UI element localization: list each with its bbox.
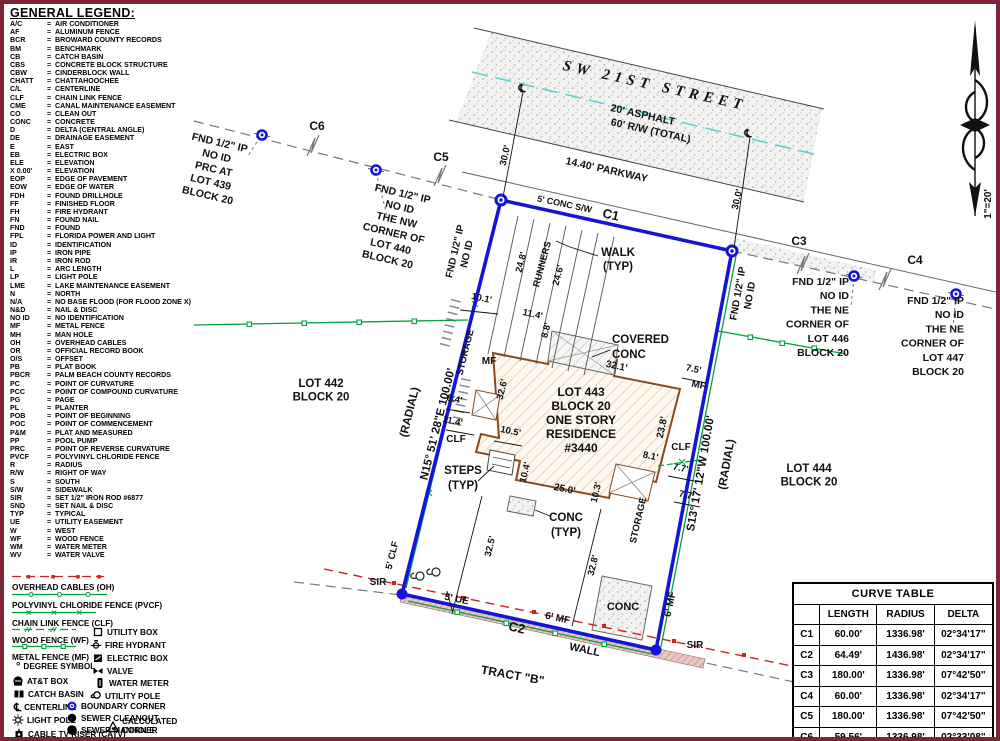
label-steps-typ: STEPS(TYP) bbox=[444, 465, 482, 492]
label-dim-11-4-top: 11.4' bbox=[521, 307, 543, 322]
legend-meaning: PALM BEACH COUNTY RECORDS bbox=[55, 371, 171, 379]
wf-line-sample bbox=[12, 625, 76, 634]
curve-table-cell: C1 bbox=[793, 625, 820, 646]
legend-abbr: X 0.00' bbox=[10, 167, 47, 175]
legend-equals: = bbox=[47, 224, 55, 232]
legend-meaning: IDENTIFICATION bbox=[55, 241, 111, 249]
legend-row: ID=IDENTIFICATION bbox=[10, 241, 210, 249]
legend-abbr: FH bbox=[10, 208, 47, 216]
legend-meaning: POINT OF COMMENCEMENT bbox=[55, 420, 153, 428]
curve-table-row: C460.00'1336.98'02°34'17" bbox=[793, 686, 993, 707]
legend-abbr: LP bbox=[10, 273, 47, 281]
legend-equals: = bbox=[47, 355, 55, 363]
legend-row: CME=CANAL MAINTENANCE EASEMENT bbox=[10, 102, 210, 110]
legend-catch-basin-label: CATCH BASIN bbox=[28, 690, 84, 699]
curve-table-cell: C4 bbox=[793, 686, 820, 707]
legend-abbr: N bbox=[10, 290, 47, 298]
legend-equals: = bbox=[47, 143, 55, 151]
legend-equals: = bbox=[47, 380, 55, 388]
legend-meaning: ARC LENGTH bbox=[55, 265, 102, 273]
legend-meaning: EAST bbox=[55, 143, 74, 151]
legend-equals: = bbox=[47, 241, 55, 249]
att-box-icon bbox=[12, 675, 24, 687]
legend-row: BM=BENCHMARK bbox=[10, 45, 210, 53]
label-lot-444: LOT 444BLOCK 20 bbox=[781, 463, 838, 489]
found-ip-marker bbox=[496, 195, 506, 205]
legend-utility-box: UTILITY BOX bbox=[92, 626, 158, 638]
legend-equals: = bbox=[47, 183, 55, 191]
legend-meaning: SOUTH bbox=[55, 478, 80, 486]
legend-row: CB=CATCH BASIN bbox=[10, 53, 210, 61]
legend-meaning: ELEVATION bbox=[55, 159, 95, 167]
legend-meaning: NO IDENTIFICATION bbox=[55, 314, 124, 322]
legend-abbr: LME bbox=[10, 282, 47, 290]
label-sir-right: SIR bbox=[687, 640, 704, 651]
curve-table-cell: 1336.98' bbox=[877, 707, 934, 728]
curve-table-cell: C5 bbox=[793, 707, 820, 728]
legend-fire-hydrant-label: FIRE HYDRANT bbox=[105, 641, 166, 650]
cable-tv-riser-icon bbox=[13, 728, 25, 740]
legend-meaning: POLYVINYL CHLORIDE FENCE bbox=[55, 453, 159, 461]
legend-abbr: PL bbox=[10, 404, 47, 412]
legend-equals: = bbox=[47, 306, 55, 314]
legend-meaning: TYPICAL bbox=[55, 510, 85, 518]
label-conc-sw: 5' CONC S/W bbox=[536, 193, 593, 214]
curve-table-header: RADIUS bbox=[877, 604, 934, 625]
conc-typ-leader bbox=[535, 510, 550, 516]
legend-meaning: NO BASE FLOOD (FOR FLOOD ZONE X) bbox=[55, 298, 191, 306]
legend-row: S/W=SIDEWALK bbox=[10, 486, 210, 494]
curve-table-header bbox=[793, 604, 820, 625]
legend-row: CBS=CONCRETE BLOCK STRUCTURE bbox=[10, 61, 210, 69]
label-curve-c2: C2 bbox=[507, 619, 526, 637]
legend-equals: = bbox=[47, 61, 55, 69]
legend-equals: = bbox=[47, 118, 55, 126]
label-lot-442: LOT 442BLOCK 20 bbox=[293, 378, 350, 404]
legend-row: A/C=AIR CONDITIONER bbox=[10, 20, 210, 28]
legend-row: MF=METAL FENCE bbox=[10, 322, 210, 330]
legend-row: PG=PAGE bbox=[10, 396, 210, 404]
legend-row: WF=WOOD FENCE bbox=[10, 535, 210, 543]
legend-abbr: OH bbox=[10, 339, 47, 347]
curve-table-cell: 07°42'50" bbox=[934, 707, 993, 728]
label-conc-typ: CONC(TYP) bbox=[549, 512, 583, 539]
legend-meaning: POOL PUMP bbox=[55, 437, 97, 445]
label-bearing-west-radial: (RADIAL) bbox=[398, 386, 422, 439]
legend-abbr: CBW bbox=[10, 69, 47, 77]
legend-row: PRC=POINT OF REVERSE CURVATURE bbox=[10, 445, 210, 453]
legend-meaning: IRON PIPE bbox=[55, 249, 91, 257]
label-fnd-lot447: FND 1/2" IPNO IDTHE NECORNER OFLOT 447BL… bbox=[901, 295, 965, 378]
legend-abbr: CLF bbox=[10, 94, 47, 102]
legend-abbr: BCR bbox=[10, 36, 47, 44]
legend-abbr: CB bbox=[10, 53, 47, 61]
legend-abbr: PCC bbox=[10, 388, 47, 396]
legend-abbr: WV bbox=[10, 551, 47, 559]
legend-meaning: EDGE OF PAVEMENT bbox=[55, 175, 127, 183]
curve-table-cell: 07°42'50" bbox=[934, 666, 993, 687]
legend-abbr: BM bbox=[10, 45, 47, 53]
legend-equals: = bbox=[47, 175, 55, 183]
boundary-corner-icon bbox=[66, 700, 78, 712]
label-curve-c5: C5 bbox=[433, 150, 449, 164]
legend-equals: = bbox=[47, 298, 55, 306]
north-arrow bbox=[960, 20, 990, 216]
line-break-symbol bbox=[879, 269, 891, 290]
legend-row: R=RADIUS bbox=[10, 461, 210, 469]
legend-meaning: CHAIN LINK FENCE bbox=[55, 94, 122, 102]
legend-meaning: SIDEWALK bbox=[55, 486, 92, 494]
legend-row: CHATT=CHATTAHOOCHEE bbox=[10, 77, 210, 85]
legend-row: WV=WATER VALVE bbox=[10, 551, 210, 559]
curve-table-cell: 1336.98' bbox=[877, 727, 934, 741]
legend-meaning: WATER METER bbox=[55, 543, 107, 551]
legend-row: CBW=CINDERBLOCK WALL bbox=[10, 69, 210, 77]
legend-row: POC=POINT OF COMMENCEMENT bbox=[10, 420, 210, 428]
legend-equals: = bbox=[47, 518, 55, 526]
legend-meaning: FOUND NAIL bbox=[55, 216, 99, 224]
legend-equals: = bbox=[47, 437, 55, 445]
legend-meaning: PLAT BOOK bbox=[55, 363, 96, 371]
legend-utility-box-label: UTILITY BOX bbox=[107, 628, 158, 637]
valve-icon bbox=[92, 665, 104, 677]
legend-meaning: METAL FENCE bbox=[55, 322, 105, 330]
legend-abbr: N/A bbox=[10, 298, 47, 306]
legend-equals: = bbox=[47, 461, 55, 469]
curve-table-cell: 02°34'17" bbox=[934, 686, 993, 707]
label-tract-b: TRACT "B" bbox=[480, 663, 546, 688]
legend-rows: A/C=AIR CONDITIONERAF=ALUMINUM FENCEBCR=… bbox=[10, 20, 210, 559]
legend-meaning: BENCHMARK bbox=[55, 45, 102, 53]
legend-meaning: DRAINAGE EASEMENT bbox=[55, 134, 134, 142]
legend-equals: = bbox=[47, 134, 55, 142]
steps-structure bbox=[487, 450, 515, 475]
legend-equals: = bbox=[47, 28, 55, 36]
legend-meaning: NAIL & DISC bbox=[55, 306, 97, 314]
legend-row: ELE=ELEVATION bbox=[10, 159, 210, 167]
legend-meaning: OVERHEAD CABLES bbox=[55, 339, 126, 347]
legend-meaning: FLORIDA POWER AND LIGHT bbox=[55, 232, 155, 240]
legend-meaning: LAKE MAINTENANCE EASEMENT bbox=[55, 282, 170, 290]
catch-basin-icon bbox=[13, 688, 25, 700]
label-covered-conc: COVEREDCONC bbox=[612, 334, 669, 361]
legend-electric-box-label: ELECTRIC BOX bbox=[107, 654, 168, 663]
legend-meaning: CLEAN OUT bbox=[55, 110, 96, 118]
legend-equals: = bbox=[47, 208, 55, 216]
legend-abbr: PB bbox=[10, 363, 47, 371]
legend-meaning: ELEVATION bbox=[55, 167, 95, 175]
legend-abbr: R/W bbox=[10, 469, 47, 477]
legend-equals: = bbox=[47, 257, 55, 265]
legend-meaning: POINT OF CURVATURE bbox=[55, 380, 134, 388]
legend-equals: = bbox=[47, 339, 55, 347]
label-dim-24-6: 24.6' bbox=[551, 264, 567, 287]
label-clf-right: CLF bbox=[671, 442, 690, 453]
curve-table-cell: 1336.98' bbox=[877, 666, 934, 687]
label-walk-typ: WALK(TYP) bbox=[601, 247, 636, 273]
legend-oh-sample: OVERHEAD CABLES (OH) bbox=[12, 572, 114, 592]
line-break-symbol bbox=[307, 135, 319, 156]
curve-table-cell: 180.00' bbox=[820, 707, 877, 728]
legend-row: POB=POINT OF BEGINNING bbox=[10, 412, 210, 420]
label-mf-west: MF bbox=[482, 356, 496, 367]
legend-equals: = bbox=[47, 77, 55, 85]
legend-equals: = bbox=[47, 102, 55, 110]
legend-abbr: CME bbox=[10, 102, 47, 110]
legend-meaning: BROWARD COUNTY RECORDS bbox=[55, 36, 162, 44]
legend-row: BCR=BROWARD COUNTY RECORDS bbox=[10, 36, 210, 44]
legend-boundary-corner: BOUNDARY CORNER bbox=[66, 700, 166, 712]
curve-table-cell: C2 bbox=[793, 645, 820, 666]
legend-abbr: ID bbox=[10, 241, 47, 249]
legend-meaning: FOUND bbox=[55, 224, 80, 232]
legend-equals: = bbox=[47, 453, 55, 461]
light-pole-icon bbox=[12, 714, 24, 726]
legend-row: PB=PLAT BOOK bbox=[10, 363, 210, 371]
legend-abbr: DE bbox=[10, 134, 47, 142]
legend-abbr: PP bbox=[10, 437, 47, 445]
label-dim-7-5: 7.5' bbox=[685, 363, 702, 377]
utility-box-icon bbox=[92, 626, 104, 638]
legend-abbr: PG bbox=[10, 396, 47, 404]
legend-abbr: C/L bbox=[10, 85, 47, 93]
legend-meaning: OFFICIAL RECORD BOOK bbox=[55, 347, 144, 355]
sewer-cleanout-icon bbox=[66, 712, 78, 724]
legend-row: SND=SET NAIL & DISC bbox=[10, 502, 210, 510]
legend-degree: °DEGREE SYMBOL bbox=[16, 662, 95, 671]
legend-abbr: IP bbox=[10, 249, 47, 257]
legend-abbr: MF bbox=[10, 322, 47, 330]
legend-equals: = bbox=[47, 20, 55, 28]
legend-equals: = bbox=[47, 151, 55, 159]
legend-abbr: FN bbox=[10, 216, 47, 224]
curve-table-row: C160.00'1336.98'02°34'17" bbox=[793, 625, 993, 646]
label-clf-west: CLF bbox=[446, 434, 465, 445]
legend-row: FF=FINISHED FLOOR bbox=[10, 200, 210, 208]
legend-row: CLF=CHAIN LINK FENCE bbox=[10, 94, 210, 102]
legend-row: FPL=FLORIDA POWER AND LIGHT bbox=[10, 232, 210, 240]
legend-abbr: EB bbox=[10, 151, 47, 159]
curve-table-row: C5180.00'1336.98'07°42'50" bbox=[793, 707, 993, 728]
label-centerline-sym-right: ℄ bbox=[743, 128, 752, 140]
curve-table-cell: C3 bbox=[793, 666, 820, 687]
found-ip-marker bbox=[254, 131, 270, 140]
curve-table-row: C659.56'1336.98'02°33'08" bbox=[793, 727, 993, 741]
legend-mf-label: METAL FENCE (MF) bbox=[12, 653, 89, 662]
legend-equals: = bbox=[47, 510, 55, 518]
legend-meaning: CONCRETE bbox=[55, 118, 95, 126]
legend-row: LP=LIGHT POLE bbox=[10, 273, 210, 281]
legend-row: P&M=PLAT AND MEASURED bbox=[10, 429, 210, 437]
legend-abbr: S bbox=[10, 478, 47, 486]
legend-abbr: UE bbox=[10, 518, 47, 526]
legend-abbr: S/W bbox=[10, 486, 47, 494]
legend-valve-label: VALVE bbox=[107, 667, 133, 676]
legend-equals: = bbox=[47, 282, 55, 290]
legend-boundary-corner-label: BOUNDARY CORNER bbox=[81, 702, 166, 711]
label-scale-note: 1"=20' bbox=[983, 189, 994, 219]
legend-row: UE=UTILITY EASEMENT bbox=[10, 518, 210, 526]
legend-meaning: SET NAIL & DISC bbox=[55, 502, 113, 510]
oh-line-sample bbox=[12, 572, 104, 581]
curve-table-cell: 64.49' bbox=[820, 645, 877, 666]
label-mf-right: MF bbox=[690, 379, 706, 393]
legend-row: S=SOUTH bbox=[10, 478, 210, 486]
legend-calculated-corner: CALCULATED CORNER bbox=[107, 718, 184, 735]
legend-row: PCC=POINT OF COMPOUND CURVATURE bbox=[10, 388, 210, 396]
found-ip-marker bbox=[727, 246, 737, 256]
curve-table-cell: 02°34'17" bbox=[934, 645, 993, 666]
legend-row: EOP=EDGE OF PAVEMENT bbox=[10, 175, 210, 183]
legend-abbr: WM bbox=[10, 543, 47, 551]
legend-equals: = bbox=[47, 45, 55, 53]
legend-abbr: E bbox=[10, 143, 47, 151]
legend-row: WM=WATER METER bbox=[10, 543, 210, 551]
legend-abbr: AF bbox=[10, 28, 47, 36]
legend-abbr: POB bbox=[10, 412, 47, 420]
set-iron-rod-marker bbox=[651, 645, 662, 656]
legend-equals: = bbox=[47, 216, 55, 224]
legend-equals: = bbox=[47, 429, 55, 437]
legend-equals: = bbox=[47, 265, 55, 273]
legend-row: LME=LAKE MAINTENANCE EASEMENT bbox=[10, 282, 210, 290]
legend-meaning: CATCH BASIN bbox=[55, 53, 103, 61]
label-fnd-vert-right: FND 1/2" IPNO ID bbox=[728, 266, 760, 324]
legend-equals: = bbox=[47, 494, 55, 502]
legend-meaning: CENTERLINE bbox=[55, 85, 100, 93]
legend-abbr: SND bbox=[10, 502, 47, 510]
mf-west-line bbox=[194, 320, 468, 325]
legend-meaning: UTILITY EASEMENT bbox=[55, 518, 123, 526]
legend-row: PC=POINT OF CURVATURE bbox=[10, 380, 210, 388]
legend-row: FN=FOUND NAIL bbox=[10, 216, 210, 224]
legend-equals: = bbox=[47, 543, 55, 551]
utility-pole-symbol bbox=[411, 568, 440, 580]
legend-catch-basin: CATCH BASIN bbox=[13, 688, 84, 700]
legend-meaning: NORTH bbox=[55, 290, 80, 298]
label-fnd-lot446: FND 1/2" IPNO IDTHE NECORNER OFLOT 446BL… bbox=[786, 276, 850, 359]
legend-row: N=NORTH bbox=[10, 290, 210, 298]
label-storage-west: STORAGE bbox=[455, 328, 477, 376]
legend-equals: = bbox=[47, 110, 55, 118]
survey-sheet: SW 21ST STREET20' ASPHALT60' R/W (TOTAL)… bbox=[0, 0, 1000, 741]
label-dim-7-7-b: 7.7' bbox=[678, 489, 695, 503]
legend-row: IR=IRON ROD bbox=[10, 257, 210, 265]
degree-icon: ° bbox=[16, 663, 20, 671]
label-dim-32-8: 32.8' bbox=[586, 554, 602, 577]
legend-equals: = bbox=[47, 126, 55, 134]
curve-table-cell: 02°34'17" bbox=[934, 625, 993, 646]
curve-table-cell: 180.00' bbox=[820, 666, 877, 687]
legend-meaning: WOOD FENCE bbox=[55, 535, 104, 543]
legend-calculated-corner-label: CALCULATED CORNER bbox=[122, 718, 184, 735]
legend-meaning: FINISHED FLOOR bbox=[55, 200, 115, 208]
legend-row: PBCR=PALM BEACH COUNTY RECORDS bbox=[10, 371, 210, 379]
legend-row: C/L=CENTERLINE bbox=[10, 85, 210, 93]
legend-meaning: FIRE HYDRANT bbox=[55, 208, 108, 216]
legend-row: N/A=NO BASE FLOOD (FOR FLOOD ZONE X) bbox=[10, 298, 210, 306]
legend-pvcf-sample: POLYVINYL CHLORIDE FENCE (PVCF) bbox=[12, 590, 162, 610]
label-conc-bottom: CONC bbox=[607, 601, 639, 613]
label-storage-se: STORAGE bbox=[628, 496, 649, 544]
legend-meaning: CANAL MAINTENANCE EASEMENT bbox=[55, 102, 175, 110]
legend-row: CO=CLEAN OUT bbox=[10, 110, 210, 118]
label-sir-left: SIR bbox=[370, 577, 387, 588]
legend-abbr: PVCF bbox=[10, 453, 47, 461]
set-iron-rod-marker bbox=[397, 589, 408, 600]
legend-row: OR=OFFICIAL RECORD BOOK bbox=[10, 347, 210, 355]
legend-equals: = bbox=[47, 85, 55, 93]
legend-meaning: LIGHT POLE bbox=[55, 273, 98, 281]
legend-meaning: ALUMINUM FENCE bbox=[55, 28, 120, 36]
legend-row: D=DELTA (CENTRAL ANGLE) bbox=[10, 126, 210, 134]
curve-table-header: LENGTH bbox=[820, 604, 877, 625]
legend-meaning: WATER VALVE bbox=[55, 551, 105, 559]
legend-row: TYP=TYPICAL bbox=[10, 510, 210, 518]
legend-meaning: DELTA (CENTRAL ANGLE) bbox=[55, 126, 144, 134]
legend-abbr: PBCR bbox=[10, 371, 47, 379]
legend-equals: = bbox=[47, 200, 55, 208]
curve-table-cell: 1336.98' bbox=[877, 686, 934, 707]
general-legend: GENERAL LEGEND: A/C=AIR CONDITIONERAF=AL… bbox=[10, 6, 210, 559]
legend-equals: = bbox=[47, 36, 55, 44]
legend-equals: = bbox=[47, 445, 55, 453]
legend-row: N&D=NAIL & DISC bbox=[10, 306, 210, 314]
legend-abbr: O/S bbox=[10, 355, 47, 363]
label-fnd-vert-left: FND 1/2" IPNO ID bbox=[444, 223, 479, 281]
legend-row: DE=DRAINAGE EASEMENT bbox=[10, 134, 210, 142]
legend-row: R/W=RIGHT OF WAY bbox=[10, 469, 210, 477]
label-dim-30-right: 30.0' bbox=[730, 188, 745, 211]
legend-meaning: PAGE bbox=[55, 396, 75, 404]
legend-abbr: ELE bbox=[10, 159, 47, 167]
legend-equals: = bbox=[47, 314, 55, 322]
legend-degree-label: DEGREE SYMBOL bbox=[23, 662, 95, 671]
legend-abbr: P&M bbox=[10, 429, 47, 437]
label-dim-7-7-a: 7.7' bbox=[672, 462, 689, 476]
legend-equals: = bbox=[47, 412, 55, 420]
legend-equals: = bbox=[47, 535, 55, 543]
curve-table-header: DELTA bbox=[934, 604, 993, 625]
legend-meaning: CHATTAHOOCHEE bbox=[55, 77, 119, 85]
curve-table-row: C3180.00'1336.98'07°42'50" bbox=[793, 666, 993, 687]
line-break-symbol bbox=[434, 165, 446, 186]
conc-pad-small bbox=[507, 496, 536, 516]
legend-meaning: ELECTRIC BOX bbox=[55, 151, 108, 159]
legend-water-meter: WATER METER bbox=[94, 677, 169, 689]
legend-equals: = bbox=[47, 371, 55, 379]
legend-electric-box: ELECTRIC BOX bbox=[92, 652, 168, 664]
legend-equals: = bbox=[47, 486, 55, 494]
legend-row: X 0.00'=ELEVATION bbox=[10, 167, 210, 175]
legend-row: EOW=EDGE OF WATER bbox=[10, 183, 210, 191]
legend-meaning: OFFSET bbox=[55, 355, 83, 363]
legend-equals: = bbox=[47, 290, 55, 298]
legend-meaning: PLANTER bbox=[55, 404, 89, 412]
legend-abbr: OR bbox=[10, 347, 47, 355]
legend-meaning: CINDERBLOCK WALL bbox=[55, 69, 129, 77]
legend-abbr: W bbox=[10, 527, 47, 535]
curve-table-cell: 1336.98' bbox=[877, 625, 934, 646]
legend-meaning: FOUND DRILLHOLE bbox=[55, 192, 123, 200]
legend-equals: = bbox=[47, 396, 55, 404]
legend-equals: = bbox=[47, 363, 55, 371]
curve-table-cell: 59.56' bbox=[820, 727, 877, 741]
legend-equals: = bbox=[47, 420, 55, 428]
legend-fire-hydrant: FIRE HYDRANT bbox=[90, 639, 166, 651]
legend-row: NO ID=NO IDENTIFICATION bbox=[10, 314, 210, 322]
curve-table-header-row: LENGTHRADIUSDELTA bbox=[793, 604, 993, 625]
